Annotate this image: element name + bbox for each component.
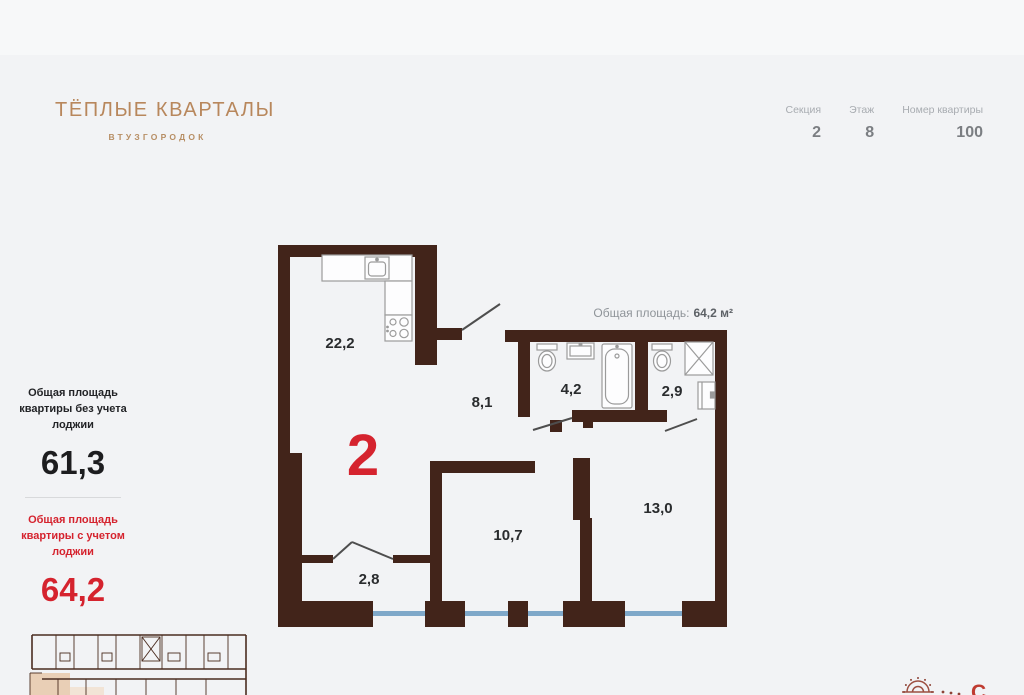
north-label: С xyxy=(971,681,986,695)
wc-door-swing xyxy=(665,419,697,431)
floorplan-sheet: { "brand": { "title": "ТЁПЛЫЕ КВАРТАЛЫ",… xyxy=(0,0,1024,695)
area-without-loggia: Общая площадь квартиры без учета лоджии … xyxy=(13,386,133,482)
stat-apartment-number: Номер квартиры 100 xyxy=(902,104,983,142)
walls xyxy=(278,245,727,627)
room-label-bedroom: 13,0 xyxy=(643,500,672,517)
area-with-loggia-label: Общая площадь квартиры с учетом лоджии xyxy=(13,513,133,561)
stove-icon xyxy=(385,315,412,341)
sun-icon xyxy=(902,681,934,692)
kitchen-sink-tap xyxy=(376,258,379,261)
compass-drawing: С xyxy=(893,662,1013,695)
toilet-tank xyxy=(537,344,557,350)
area-without-loggia-value: 61,3 xyxy=(13,444,133,482)
loggia-door-right-swing xyxy=(352,542,393,559)
area-with-loggia: Общая площадь квартиры с учетом лоджии 6… xyxy=(13,513,133,609)
stat-apartment-number-value: 100 xyxy=(902,124,983,142)
compass: С xyxy=(893,662,1013,695)
stat-floor-value: 8 xyxy=(849,124,874,142)
room-label-loggia: 2,8 xyxy=(359,571,380,588)
stat-section-value: 2 xyxy=(785,124,821,142)
floor-plan: 22,2 8,1 4,2 2,9 13,0 10,7 2,8 2 xyxy=(270,240,735,630)
entrance-door-swing xyxy=(462,304,500,330)
highlighted-apartment xyxy=(30,673,70,695)
kitchen-fixtures xyxy=(322,255,412,341)
room-label-bathroom: 4,2 xyxy=(561,381,582,398)
area-with-loggia-value: 64,2 xyxy=(13,571,133,609)
floor-overview-map xyxy=(28,629,250,695)
area-without-loggia-label: Общая площадь квартиры без учета лоджии xyxy=(13,386,133,434)
stat-apartment-number-label: Номер квартиры xyxy=(902,104,983,116)
compass-dots xyxy=(942,691,961,695)
rooms-count-badge: 2 xyxy=(347,423,379,488)
kitchen-counter-side xyxy=(385,281,412,315)
room-label-room: 10,7 xyxy=(493,527,522,544)
room-label-hallway: 8,1 xyxy=(472,394,493,411)
room-label-wc: 2,9 xyxy=(662,383,683,400)
brand-title: ТЁПЛЫЕ КВАРТАЛЫ xyxy=(55,99,260,122)
stat-floor-label: Этаж xyxy=(849,104,874,116)
room-label-kitchen: 22,2 xyxy=(325,335,354,352)
brand-subtitle: ВТУЗГОРОДОК xyxy=(55,132,260,142)
apartment-meta: Секция 2 Этаж 8 Номер квартиры 100 xyxy=(785,104,983,142)
stat-section: Секция 2 xyxy=(785,104,821,142)
stat-floor: Этаж 8 xyxy=(849,104,874,142)
kitchen-sink-basin xyxy=(369,262,386,276)
loggia-door-left-swing xyxy=(333,542,352,559)
brand-logo: ТЁПЛЫЕ КВАРТАЛЫ ВТУЗГОРОДОК xyxy=(55,99,260,142)
highlighted-apartment-loggia xyxy=(70,687,104,695)
floor-plan-drawing: 22,2 8,1 4,2 2,9 13,0 10,7 2,8 2 xyxy=(270,240,735,630)
stat-section-label: Секция xyxy=(785,104,821,116)
wc-toilet-tank xyxy=(652,344,672,350)
area-summary-panel: Общая площадь квартиры без учета лоджии … xyxy=(13,386,133,609)
floor-overview-drawing xyxy=(28,629,250,695)
top-band xyxy=(0,0,1024,55)
summary-divider xyxy=(25,497,121,498)
bathroom-fixtures xyxy=(537,343,632,408)
